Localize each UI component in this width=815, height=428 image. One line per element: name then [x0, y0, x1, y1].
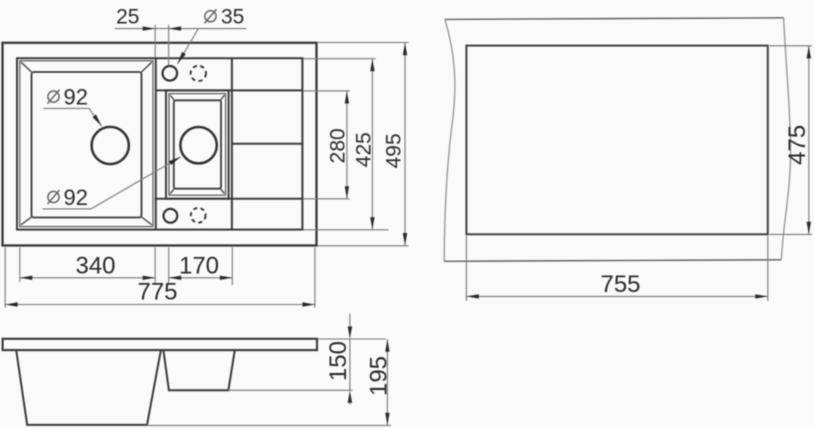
svg-text:170: 170	[179, 253, 219, 280]
svg-text:280: 280	[327, 128, 350, 163]
svg-text:92: 92	[64, 85, 88, 110]
svg-text:150: 150	[325, 341, 352, 381]
svg-text:495: 495	[383, 133, 406, 168]
svg-text:35: 35	[221, 6, 244, 29]
svg-text:425: 425	[353, 132, 376, 167]
svg-text:340: 340	[75, 253, 115, 280]
svg-text:755: 755	[600, 271, 640, 298]
svg-text:92: 92	[64, 185, 88, 210]
svg-text:475: 475	[784, 125, 811, 165]
svg-text:25: 25	[116, 6, 139, 29]
svg-text:195: 195	[366, 356, 393, 396]
svg-text:775: 775	[137, 279, 177, 306]
